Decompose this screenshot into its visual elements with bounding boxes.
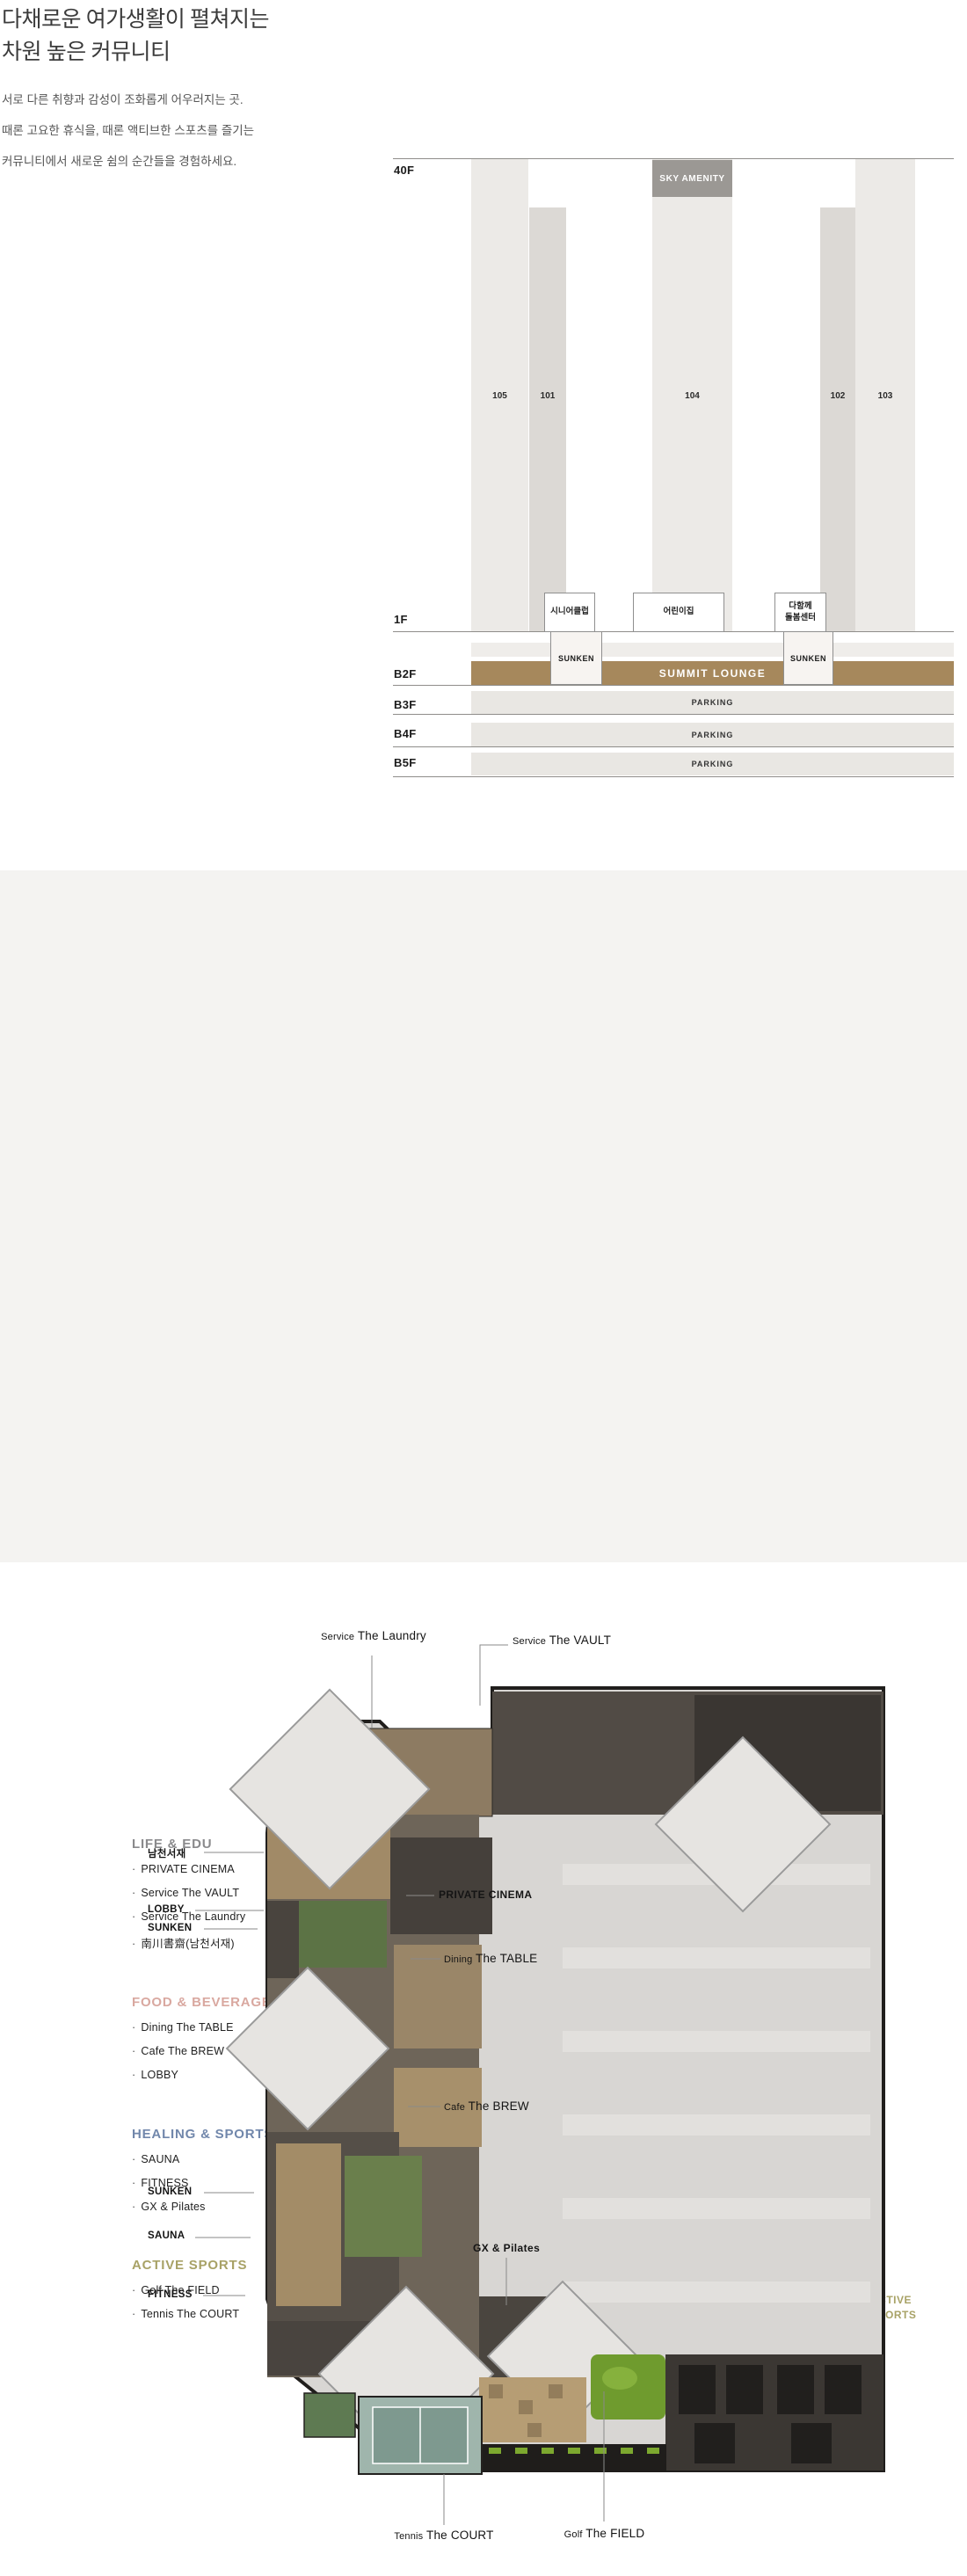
label-golf-field-name: The FIELD: [585, 2527, 644, 2540]
label-dining-table-name: The TABLE: [476, 1952, 537, 1965]
label-service-laundry: Service The Laundry: [290, 1629, 457, 1642]
facility-box-daycare: 어린이집: [633, 593, 724, 632]
intro-description-line: 서로 다른 취향과 감성이 조화롭게 어우러지는 곳.: [2, 84, 254, 115]
care-center-line1: 다함께: [785, 601, 816, 613]
label-service-vault-name: The VAULT: [549, 1634, 611, 1647]
line-b3f: [393, 714, 954, 715]
intro-section: 다채로운 여가생활이 펼쳐지는 차원 높은 커뮤니티 서로 다른 취향과 감성이…: [0, 0, 967, 870]
intro-description-line: 때론 고요한 휴식을, 때론 액티브한 스포츠를 즐기는: [2, 115, 254, 146]
label-tennis-court-prefix: Tennis: [394, 2531, 423, 2542]
line-b2f: [393, 685, 954, 686]
label-dining-table-prefix: Dining: [444, 1954, 472, 1965]
label-sunken-top: SUNKEN: [148, 1923, 192, 1933]
label-lobby: LOBBY: [148, 1904, 185, 1915]
b1-slab-band: [471, 643, 954, 657]
label-gx-pilates: GX & Pilates: [473, 2242, 540, 2254]
line-b4f: [393, 746, 954, 747]
tower-103-number: 103: [855, 391, 915, 401]
tower-101: [529, 207, 566, 631]
label-tennis-court-name: The COURT: [426, 2529, 494, 2542]
facility-box-senior-club: 시니어클럽: [544, 593, 595, 632]
tower-104-number: 104: [652, 391, 732, 401]
sunken-box-right: SUNKEN: [783, 631, 833, 685]
label-service-laundry-name: The Laundry: [358, 1629, 426, 1642]
label-cafe-brew: Cafe The BREW: [444, 2099, 529, 2113]
care-center-line2: 돌봄센터: [785, 613, 816, 624]
page-title-line2: 차원 높은 커뮤니티: [2, 36, 269, 69]
label-fitness: FITNESS: [148, 2289, 193, 2300]
label-golf-field: Golf The FIELD: [541, 2527, 668, 2540]
label-service-laundry-prefix: Service: [321, 1632, 354, 1642]
floor-label-b2f: B2F: [394, 667, 416, 680]
label-cafe-brew-name: The BREW: [469, 2099, 529, 2113]
floor-label-b4f: B4F: [394, 727, 416, 740]
lobby-block: [267, 1901, 299, 1978]
label-cafe-brew-prefix: Cafe: [444, 2102, 465, 2113]
label-sauna: SAUNA: [148, 2230, 185, 2241]
floorplan-section: Service The Laundry Service The VAULT 남천…: [0, 1562, 967, 2576]
facility-box-care-center: 다함께 돌봄센터: [774, 593, 826, 632]
intro-description-line: 커뮤니티에서 새로운 쉼의 순간들을 경험하세요.: [2, 146, 254, 177]
page-title-line1: 다채로운 여가생활이 펼쳐지는: [2, 4, 269, 36]
floor-label-40f: 40F: [394, 164, 414, 177]
private-cinema-block: [390, 1837, 492, 1934]
parking-band-b3f: PARKING: [471, 691, 954, 714]
floor-label-b3f: B3F: [394, 698, 416, 711]
floor-label-1f: 1F: [394, 613, 408, 626]
sky-amenity-badge: SKY AMENITY: [652, 160, 732, 197]
label-dining-table: Dining The TABLE: [444, 1952, 537, 1965]
tower-101-number: 101: [529, 391, 566, 401]
sauna-wood-block: [276, 2143, 341, 2306]
label-service-vault: Service The VAULT: [513, 1634, 611, 1647]
label-golf-field-prefix: Golf: [564, 2529, 583, 2540]
parking-band-b5f: PARKING: [471, 753, 954, 775]
roofline-40f: [393, 158, 954, 159]
summit-lounge-band: SUMMIT LOUNGE: [471, 661, 954, 685]
label-service-vault-prefix: Service: [513, 1636, 546, 1647]
tower-105-number: 105: [471, 391, 528, 401]
intro-description: 서로 다른 취향과 감성이 조화롭게 어우러지는 곳. 때론 고요한 휴식을, …: [2, 84, 254, 177]
golf-green-highlight: [602, 2367, 637, 2390]
tower-102: [820, 207, 855, 631]
sunken-box-left: SUNKEN: [550, 631, 602, 685]
page-title: 다채로운 여가생활이 펼쳐지는 차원 높은 커뮤니티: [2, 4, 269, 69]
parking-band-b4f: PARKING: [471, 723, 954, 746]
tower-102-number: 102: [820, 391, 855, 401]
label-tennis-court: Tennis The COURT: [374, 2529, 514, 2542]
garden-block: [299, 1901, 387, 1968]
golf-bay-row: [482, 2444, 666, 2472]
sunken-court-block: [345, 2156, 422, 2257]
line-b5f: [393, 776, 954, 777]
label-sunken-bottom: SUNKEN: [148, 2187, 192, 2197]
label-private-cinema: PRIVATE CINEMA: [439, 1888, 533, 1901]
siteplan-section: LIFE & EDU ·PRIVATE CINEMA ·Service The …: [0, 870, 967, 1562]
floor-label-b5f: B5F: [394, 756, 416, 769]
label-namcheon-seojae: 남천서재: [148, 1846, 186, 1860]
tennis-court: [304, 2393, 482, 2474]
